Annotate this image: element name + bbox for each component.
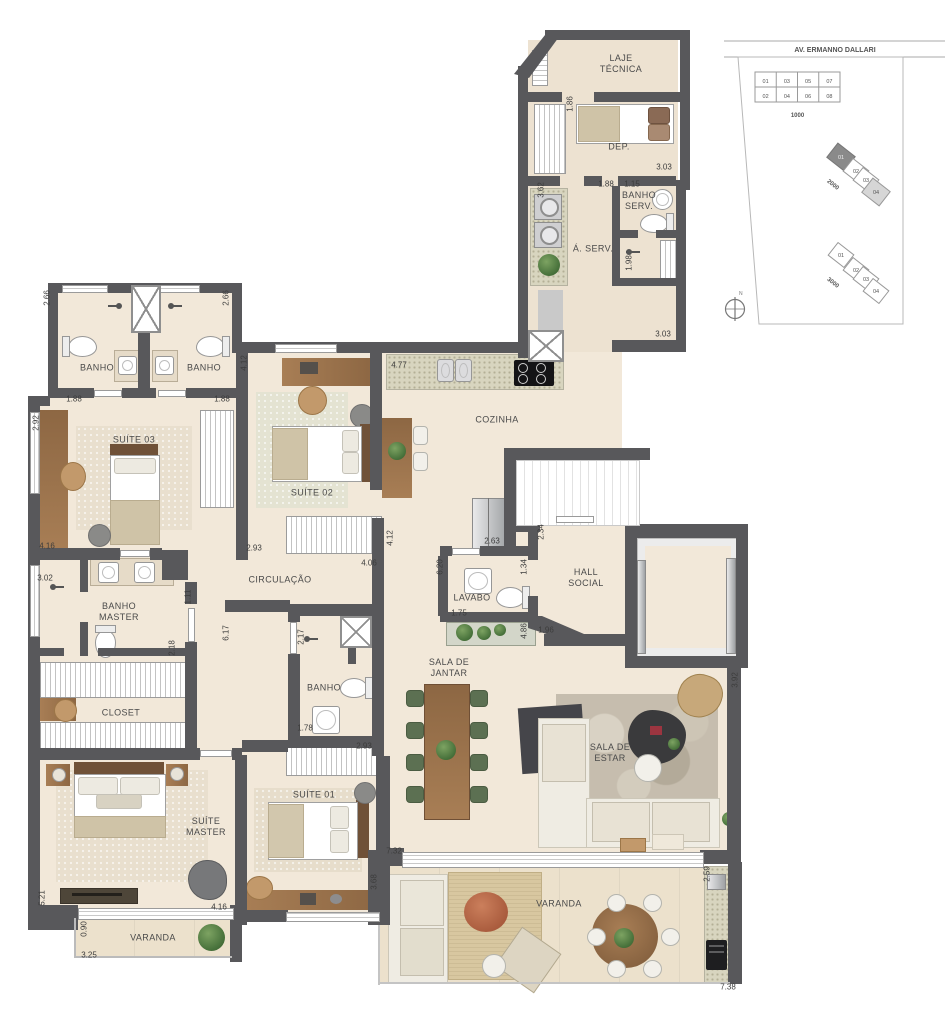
dimension-label: 3.02 [37, 574, 53, 583]
dimension-label: 3.92 [731, 672, 740, 688]
dimension-label: 1.88 [66, 395, 82, 404]
north-compass-icon: N [725, 291, 745, 321]
unit-number: 04 [873, 190, 879, 196]
site-plan: AV. ERMANNO DALLARI 01 03 05 07 02 04 06… [718, 26, 951, 332]
north-label: N [739, 291, 743, 297]
tower-3000: 01 02 03 04 3000 [826, 243, 889, 304]
unit-number: 03 [784, 79, 790, 85]
dimension-label: 7.38 [720, 983, 736, 992]
room-label-banho-master: BANHO MASTER [99, 601, 139, 623]
room-label-lavabo: LAVABO [453, 593, 490, 604]
room-label-closet: CLOSET [102, 708, 140, 719]
room-label-circulacao: CIRCULAÇÃO [248, 575, 311, 586]
room-label-a-serv: Á. SERV. [573, 244, 613, 255]
dimension-label: 3.68 [370, 874, 379, 890]
unit-number: 01 [838, 253, 844, 259]
dimension-label: 1.75 [451, 609, 467, 618]
dimension-label: 4.12 [240, 355, 249, 371]
room-label-cozinha: COZINHA [475, 415, 518, 426]
tower-label: 1000 [791, 113, 805, 119]
dimension-label: 1.88 [598, 180, 614, 189]
dimension-label: 4.16 [211, 903, 227, 912]
dimension-label: 2.18 [168, 640, 177, 656]
room-label-varanda-big: VARANDA [536, 899, 582, 910]
dimension-label: 1.96 [538, 626, 554, 635]
tower-2000: 01 02 03 04 2000 [826, 143, 891, 206]
dimension-label: 2.63 [484, 537, 500, 546]
room-label-laje-tecnica: LAJE TÉCNICA [600, 53, 642, 75]
tower-label: 3000 [826, 277, 841, 290]
tower-label: 2000 [826, 179, 841, 192]
dimension-label: 4.77 [391, 361, 407, 370]
dimension-label: 4.12 [386, 530, 395, 546]
street-name: AV. ERMANNO DALLARI [794, 47, 875, 54]
unit-number: 07 [826, 79, 832, 85]
dimension-label: 2.66 [222, 290, 231, 306]
room-label-banho-s1: BANHO [307, 683, 341, 694]
dimension-label: 1.34 [520, 559, 529, 575]
room-label-dep: DEP. [608, 142, 629, 153]
dimension-label: 3.62 [537, 182, 546, 198]
dimension-label: 4.16 [39, 542, 55, 551]
unit-number: 02 [853, 169, 859, 175]
dimension-label: 1.88 [214, 395, 230, 404]
dimension-label: 7.32 [386, 847, 402, 856]
room-label-hall-social: HALL SOCIAL [568, 567, 603, 589]
tower-1000: 01 03 05 07 02 04 06 08 1000 [755, 72, 840, 119]
unit-number: 04 [873, 289, 879, 295]
dimension-label: 2.93 [246, 544, 262, 553]
dimension-label: 3.25 [81, 951, 97, 960]
unit-number-highlighted: 01 [838, 155, 844, 161]
room-label-suite-master: SUÍTE MASTER [186, 816, 226, 838]
dimension-label: 2.17 [297, 629, 306, 645]
unit-number: 04 [784, 94, 790, 100]
dimension-label: 2.66 [43, 290, 52, 306]
unit-number: 05 [805, 79, 811, 85]
dimension-label: 1.15 [624, 180, 640, 189]
room-label-suite-02: SUÍTE 02 [291, 488, 333, 499]
dimension-label: 5.21 [38, 890, 47, 906]
floor-plan: LAJE TÉCNICA DEP. BANHO SERV. Á. SERV. C… [0, 0, 951, 1024]
dimension-label: 0.90 [80, 921, 89, 937]
dimension-label: 2.34 [537, 524, 546, 540]
unit-number: 01 [763, 79, 769, 85]
room-label-varanda-small: VARANDA [130, 933, 176, 944]
room-label-banho-1: BANHO [80, 363, 114, 374]
dimension-label: 3.03 [655, 330, 671, 339]
dimension-label: 1.86 [566, 96, 575, 112]
dimension-label: 6.20 [436, 559, 445, 575]
dimension-label: 2.59 [703, 866, 712, 882]
unit-number: 02 [853, 268, 859, 274]
unit-number: 02 [763, 94, 769, 100]
dimension-label: 6.17 [222, 625, 231, 641]
room-label-suite-01: SUÍTE 01 [293, 790, 335, 801]
room-label-suite-03: SUÍTE 03 [113, 435, 155, 446]
room-label-sala-estar: SALA DE ESTAR [590, 742, 630, 764]
dimension-label: 2.93 [356, 742, 372, 751]
unit-number: 06 [805, 94, 811, 100]
dimension-label: 1.98 [625, 255, 634, 271]
unit-number: 08 [826, 94, 832, 100]
room-label-sala-jantar: SALA DE JANTAR [429, 657, 469, 679]
unit-number: 03 [863, 277, 869, 283]
dimension-label: 1.78 [297, 724, 313, 733]
dimension-label: 4.06 [361, 559, 377, 568]
dimension-label: 3.03 [656, 163, 672, 172]
room-label-banho-2: BANHO [187, 363, 221, 374]
unit-number: 03 [863, 178, 869, 184]
room-label-banho-serv: BANHO SERV. [622, 190, 656, 212]
dimension-label: 1.11 [184, 590, 193, 605]
dimension-label: 4.86 [520, 623, 529, 639]
dimension-label: 2.92 [32, 415, 41, 431]
